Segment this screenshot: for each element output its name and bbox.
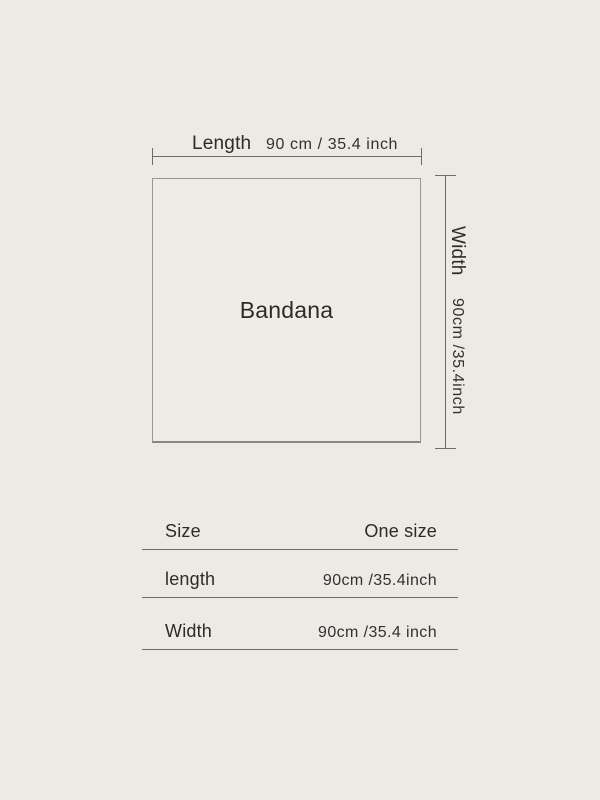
size-table: Size One size length 90cm /35.4inch Widt… — [142, 514, 458, 650]
length-value: 90 cm / 35.4 inch — [266, 136, 398, 154]
product-label: Bandana — [240, 297, 334, 324]
bandana-outline: Bandana — [152, 178, 421, 443]
width-value: 90cm /35.4inch — [448, 298, 466, 415]
size-table-row-length: length 90cm /35.4inch — [142, 550, 458, 598]
size-table-row-value: 90cm /35.4inch — [323, 572, 437, 590]
length-measure-line — [152, 156, 422, 157]
size-table-row-label: length — [165, 569, 215, 590]
length-measure-tick-left — [152, 148, 153, 165]
width-measure-tick-top — [435, 175, 456, 176]
width-label: Width — [446, 226, 468, 276]
length-measure-tick-right — [421, 148, 422, 165]
length-label: Length — [192, 133, 251, 155]
width-measure-tick-bottom — [435, 448, 456, 449]
size-table-row-label: Size — [165, 521, 201, 542]
size-table-row-size: Size One size — [142, 514, 458, 550]
width-measure-line — [445, 175, 446, 449]
size-table-row-value: One size — [364, 521, 437, 542]
size-table-row-value: 90cm /35.4 inch — [318, 624, 437, 642]
size-chart-page: Length 90 cm / 35.4 inch Bandana Width 9… — [0, 0, 600, 800]
size-table-row-width: Width 90cm /35.4 inch — [142, 598, 458, 650]
size-table-row-label: Width — [165, 621, 212, 642]
